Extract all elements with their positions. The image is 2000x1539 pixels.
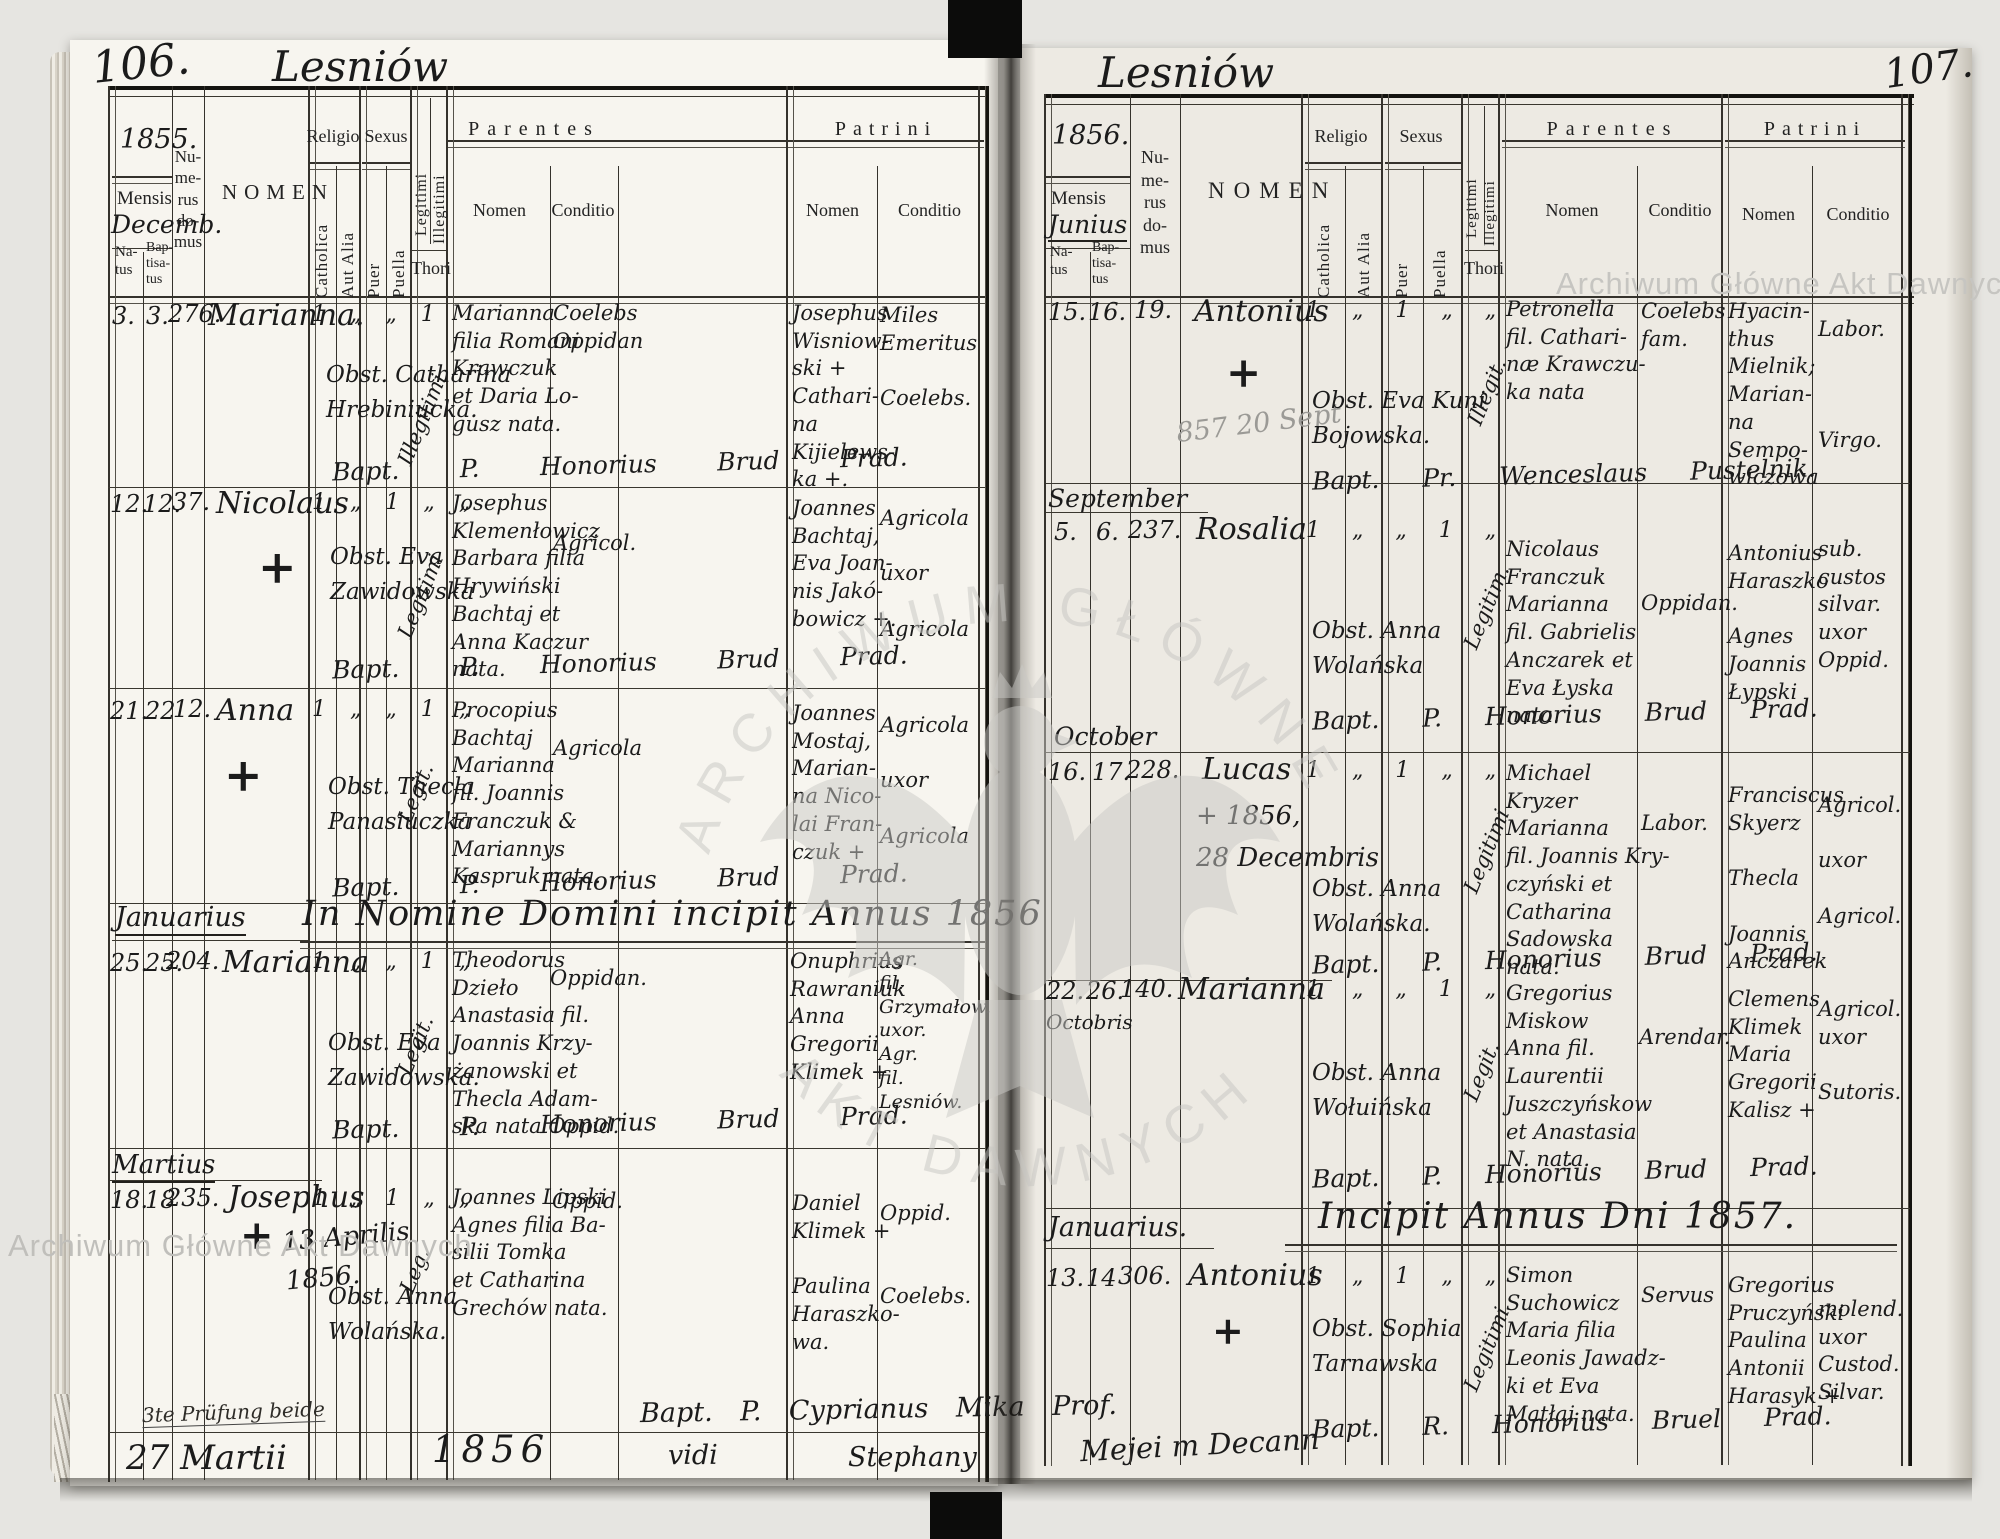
margin-note-year: 1856 <box>432 1428 550 1471</box>
page-number-left: 106. <box>90 33 193 94</box>
grid-line <box>1385 162 1463 170</box>
column-parentes: Parentes <box>448 118 620 141</box>
entry-patrini-conditio: Agricol. uxor Sutoris. <box>1818 996 1901 1107</box>
entry-patrini: Joannes Mostaj, Marian- na Nico- lai Fra… <box>792 700 882 866</box>
column-patrini-nomen: Nomen <box>788 200 877 221</box>
entry-death-cross: + <box>1226 348 1261 397</box>
column-year: 1856. <box>1052 120 1129 151</box>
entry-death-cross: + <box>224 748 263 802</box>
grid-line <box>1180 94 1181 1465</box>
margin-note-signature: Stephany <box>848 1442 977 1473</box>
entry-nomen: Lucas <box>1202 752 1291 787</box>
entry-domus: 228. <box>1126 756 1179 784</box>
entry-natus: 22. <box>1046 977 1084 1005</box>
column-patrini: Patrini <box>788 118 984 141</box>
grid-line <box>788 140 984 148</box>
column-catholica: Catholica <box>312 186 332 298</box>
column-illegitimi: Illegitimi <box>1482 110 1499 246</box>
entry-domus: 140. <box>1120 975 1173 1003</box>
grid-line <box>618 166 619 1480</box>
grid-line <box>1502 140 1723 148</box>
entry-domus: 306. <box>1118 1262 1171 1290</box>
column-aut-alia: Aut Alia <box>1354 194 1374 298</box>
column-puella: Puella <box>389 216 409 298</box>
entry-baptisatus: 22 <box>145 697 176 725</box>
grid-line <box>108 1148 985 1149</box>
section-month: Martius <box>112 1150 215 1183</box>
entry-patrini-conditio: Agr. fil. Grzymałow. uxor. Agr. fil. Les… <box>879 948 991 1114</box>
entry-parentes-conditio: Coelebs Oppidan <box>553 300 643 355</box>
section-month: Januarius <box>115 902 246 936</box>
entry-domus: 237. <box>1128 516 1181 544</box>
entry-obstetrix: Obst. Anna Wołuińska <box>1312 1056 1441 1125</box>
column-parentes: Parentes <box>1502 118 1723 141</box>
entry-religio-sexus-marks: 1 „ 1 „ „ <box>1306 758 1494 783</box>
entry-date-month-note: Octobris <box>1046 1010 1133 1034</box>
entry-religio-sexus-marks: 1 „ „ 1 „ <box>312 697 464 722</box>
entry-natus: 25. <box>110 949 148 977</box>
section-heading-1856: In Nomine Domini incipit Annus 1856 <box>302 894 1043 934</box>
entry-baptisatus: 6. <box>1096 518 1119 546</box>
column-puer: Puer <box>1392 226 1412 298</box>
entry-natus: 16. <box>1048 758 1086 786</box>
binding-strap-bottom <box>930 1492 1002 1539</box>
column-patrini-conditio: Conditio <box>877 200 982 221</box>
column-thori: Thori <box>1464 258 1504 279</box>
entry-obstetrix: Obst. Anna Wolańska. <box>328 1280 457 1349</box>
grid-line <box>448 140 788 148</box>
column-month-handwritten: Decemb. <box>111 210 222 239</box>
entry-patrini-conditio: Agricola uxor Agricola <box>880 712 969 851</box>
column-sexus: Sexus <box>1381 126 1461 147</box>
column-aut-alia: Aut Alia <box>338 196 358 298</box>
book-gutter-shadow <box>984 44 1036 1484</box>
grid-line <box>1498 94 1506 1465</box>
entry-religio-sexus-marks: 1 „ „ 1 „ <box>1306 977 1494 1002</box>
grid-line <box>112 176 172 184</box>
entry-parentes-conditio: Agricol. <box>553 530 636 558</box>
column-sexus: Sexus <box>360 126 412 147</box>
entry-death-cross: + <box>1212 1308 1244 1353</box>
grid-line <box>108 688 985 689</box>
grid-line <box>310 162 360 170</box>
book-bottom-shadow <box>60 1478 1972 1502</box>
entry-baptisatus: 14 <box>1086 1264 1117 1292</box>
entry-religio-sexus-marks: 1 „ „ 1 „ <box>312 949 464 974</box>
grid-line <box>1046 104 1914 105</box>
column-religio: Religio <box>1301 126 1381 147</box>
column-numerus-domus: Nu- me- rus do- mus <box>172 146 204 252</box>
entry-natus: 18. <box>110 1186 148 1214</box>
column-puella: Puella <box>1430 214 1450 298</box>
column-patrini-conditio: Conditio <box>1812 204 1904 225</box>
entry-domus: 235. <box>166 1184 219 1212</box>
grid-line <box>172 86 173 1480</box>
grid-line <box>204 86 205 1480</box>
column-natus: Na- tus <box>115 243 138 279</box>
grid-line <box>1305 162 1383 170</box>
entry-patrini-conditio: Agricola uxor Agricola <box>880 505 969 644</box>
entry-baptisatus: 17. <box>1092 758 1130 786</box>
entry-patrini-conditio: sub. custos silvar. uxor Oppid. <box>1818 536 1889 675</box>
entry-obstetrix: Obst. Eva Kuni Bojowska. <box>1312 384 1486 453</box>
column-legitimi: Legitimi <box>1464 106 1481 238</box>
entry-patrini: Antonius Haraszko Agnes Joannis Łypski <box>1728 540 1829 706</box>
entry-religio-sexus-marks: 1 „ 1 „ „ <box>1306 298 1494 323</box>
entry-domus: 37. <box>172 488 210 516</box>
column-numerus-domus: Nu- me- rus do- mus <box>1132 146 1178 259</box>
entry-death-date-note: + 1856, 28 Decembris <box>1196 796 1379 879</box>
grid-line <box>112 940 310 941</box>
column-illegitimi: Illegitimi <box>431 108 449 244</box>
column-natus: Na- tus <box>1050 243 1073 279</box>
margin-note-date: 27 Martii <box>126 1438 287 1478</box>
entry-death-cross: + <box>258 540 297 594</box>
entry-patrini-conditio: Agricol. uxor Agricol. <box>1818 792 1901 931</box>
entry-parentes-conditio: Oppidan. <box>1641 590 1738 618</box>
grid-line <box>1046 1248 1214 1249</box>
entry-patrini-conditio: molend. uxor Custod. Silvar. <box>1818 1296 1903 1407</box>
column-baptisatus: Bap- tisa- tus <box>146 240 173 288</box>
entry-parentes: Gregorius Miskow Anna fil. Laurentii Jus… <box>1506 980 1652 1174</box>
grid-line <box>1725 140 1905 148</box>
grid-line <box>1046 752 1910 753</box>
grid-line <box>1046 94 1914 98</box>
watermark-text-bottom-left: Archiwum Główne Akt Dawnych <box>8 1228 473 1264</box>
entry-domus: 12. <box>173 695 211 723</box>
section-month: September <box>1048 484 1187 513</box>
column-mensis: Mensis <box>1051 188 1106 210</box>
section-month: October <box>1054 722 1156 751</box>
column-patrini-nomen: Nomen <box>1725 204 1812 225</box>
entry-religio-sexus-marks: 1 „ „ 1 <box>312 302 464 327</box>
entry-obstetrix: Obst. Anna Wolańska <box>1312 614 1441 683</box>
column-patrini: Patrini <box>1725 118 1905 141</box>
entry-parentes-conditio: Agricola <box>553 735 642 763</box>
section-heading-1857: Incipit Annus Dni 1857. <box>1318 1196 1797 1237</box>
column-religio: Religio <box>306 126 360 147</box>
column-puer: Puer <box>364 226 384 298</box>
entry-religio-sexus-marks: 1 „ 1 „ „ <box>1306 1264 1494 1289</box>
column-catholica: Catholica <box>1314 184 1334 298</box>
entry-parentes: Procopius Bachtaj Marianna fil. Joannis … <box>452 697 601 891</box>
entry-nomen: Rosalia <box>1196 512 1307 547</box>
grid-line <box>1465 250 1500 251</box>
entry-baptisatus: 16. <box>1088 298 1126 326</box>
column-parentes-nomen: Nomen <box>452 200 547 221</box>
column-baptisatus: Bap- tisa- tus <box>1092 240 1119 288</box>
column-parentes-conditio: Conditio <box>546 200 620 221</box>
grid-line <box>108 86 987 90</box>
page-title-right: Lesniów <box>1098 48 1274 97</box>
entry-patrini: Clemens Klimek Maria Gregorii Kalisz + <box>1728 986 1820 1125</box>
grid-line <box>1046 176 1130 184</box>
entry-religio-sexus-marks: 1 „ 1 „ „ <box>312 1186 464 1211</box>
margin-note-vidi: vidi <box>668 1440 718 1471</box>
grid-line <box>143 252 144 1480</box>
entry-parentes-conditio: Oppidan. <box>550 965 647 993</box>
watermark-text-top-right: Archiwum Główne Akt Dawnych <box>1556 266 2000 302</box>
column-legitimi: Legitimi <box>413 104 431 236</box>
page-title-left: Lesniów <box>272 42 448 91</box>
entry-patrini-conditio: Labor. Virgo. <box>1818 316 1885 455</box>
entry-parentes-conditio: Oppid. <box>552 1188 623 1216</box>
right-page-edge-shade <box>1946 48 1972 1480</box>
entry-baptisatus: 26. <box>1086 977 1124 1005</box>
entry-parentes-conditio: Labor. <box>1641 810 1708 838</box>
column-parentes-nomen: Nomen <box>1512 200 1632 221</box>
entry-natus: 13. <box>1046 1264 1084 1292</box>
section-month: Januarius. <box>1048 1212 1187 1243</box>
entry-religio-sexus-marks: 1 „ „ 1 „ <box>1306 518 1494 543</box>
column-parentes-conditio: Conditio <box>1637 200 1723 221</box>
entry-parentes-conditio: Arendar. <box>1639 1024 1731 1052</box>
entry-patrini-conditio: Oppid. Coelebs. <box>880 1200 971 1311</box>
column-month-handwritten: Junius <box>1048 210 1127 242</box>
column-mensis: Mensis <box>117 188 172 210</box>
grid-line <box>108 86 116 1482</box>
entry-obstetrix: Obst. Anna Wolańska. <box>1312 872 1441 941</box>
entry-parentes-conditio: Servus <box>1641 1282 1714 1310</box>
entry-parentes-conditio: Coelebs fam. <box>1641 298 1726 353</box>
entry-natus: 5. <box>1054 518 1077 546</box>
column-thori: Thori <box>411 258 451 279</box>
entry-nomen: Marianna <box>1178 972 1325 1007</box>
grid-line <box>362 162 412 170</box>
entry-parentes: Petronella fil. Cathari- næ Krawczu- ka … <box>1506 296 1646 407</box>
entry-nomen: Anna <box>216 693 294 728</box>
entry-domus: 19. <box>1134 296 1172 324</box>
grid-line <box>108 96 987 97</box>
entry-obstetrix: Obst. Sophia Tarnawska <box>1312 1312 1461 1381</box>
entry-baptisatus: 3. <box>146 302 169 330</box>
grid-line <box>1285 1244 1897 1252</box>
binding-strap-top <box>948 0 1022 58</box>
entry-religio-sexus-marks: 1 „ 1 „ „ <box>312 490 464 515</box>
entry-natus: 15. <box>1048 298 1086 326</box>
entry-nomen: Antonius <box>1188 1258 1323 1293</box>
entry-natus: 3. <box>112 302 135 330</box>
entry-natus: 21. <box>110 697 148 725</box>
scanned-register-spread: 106. Lesniów Lesniów 107. 1855. Mensis D… <box>0 0 2000 1539</box>
entry-domus: 204. <box>166 947 219 975</box>
entry-patrini-conditio: Miles Emeritus Coelebs. <box>880 302 977 413</box>
